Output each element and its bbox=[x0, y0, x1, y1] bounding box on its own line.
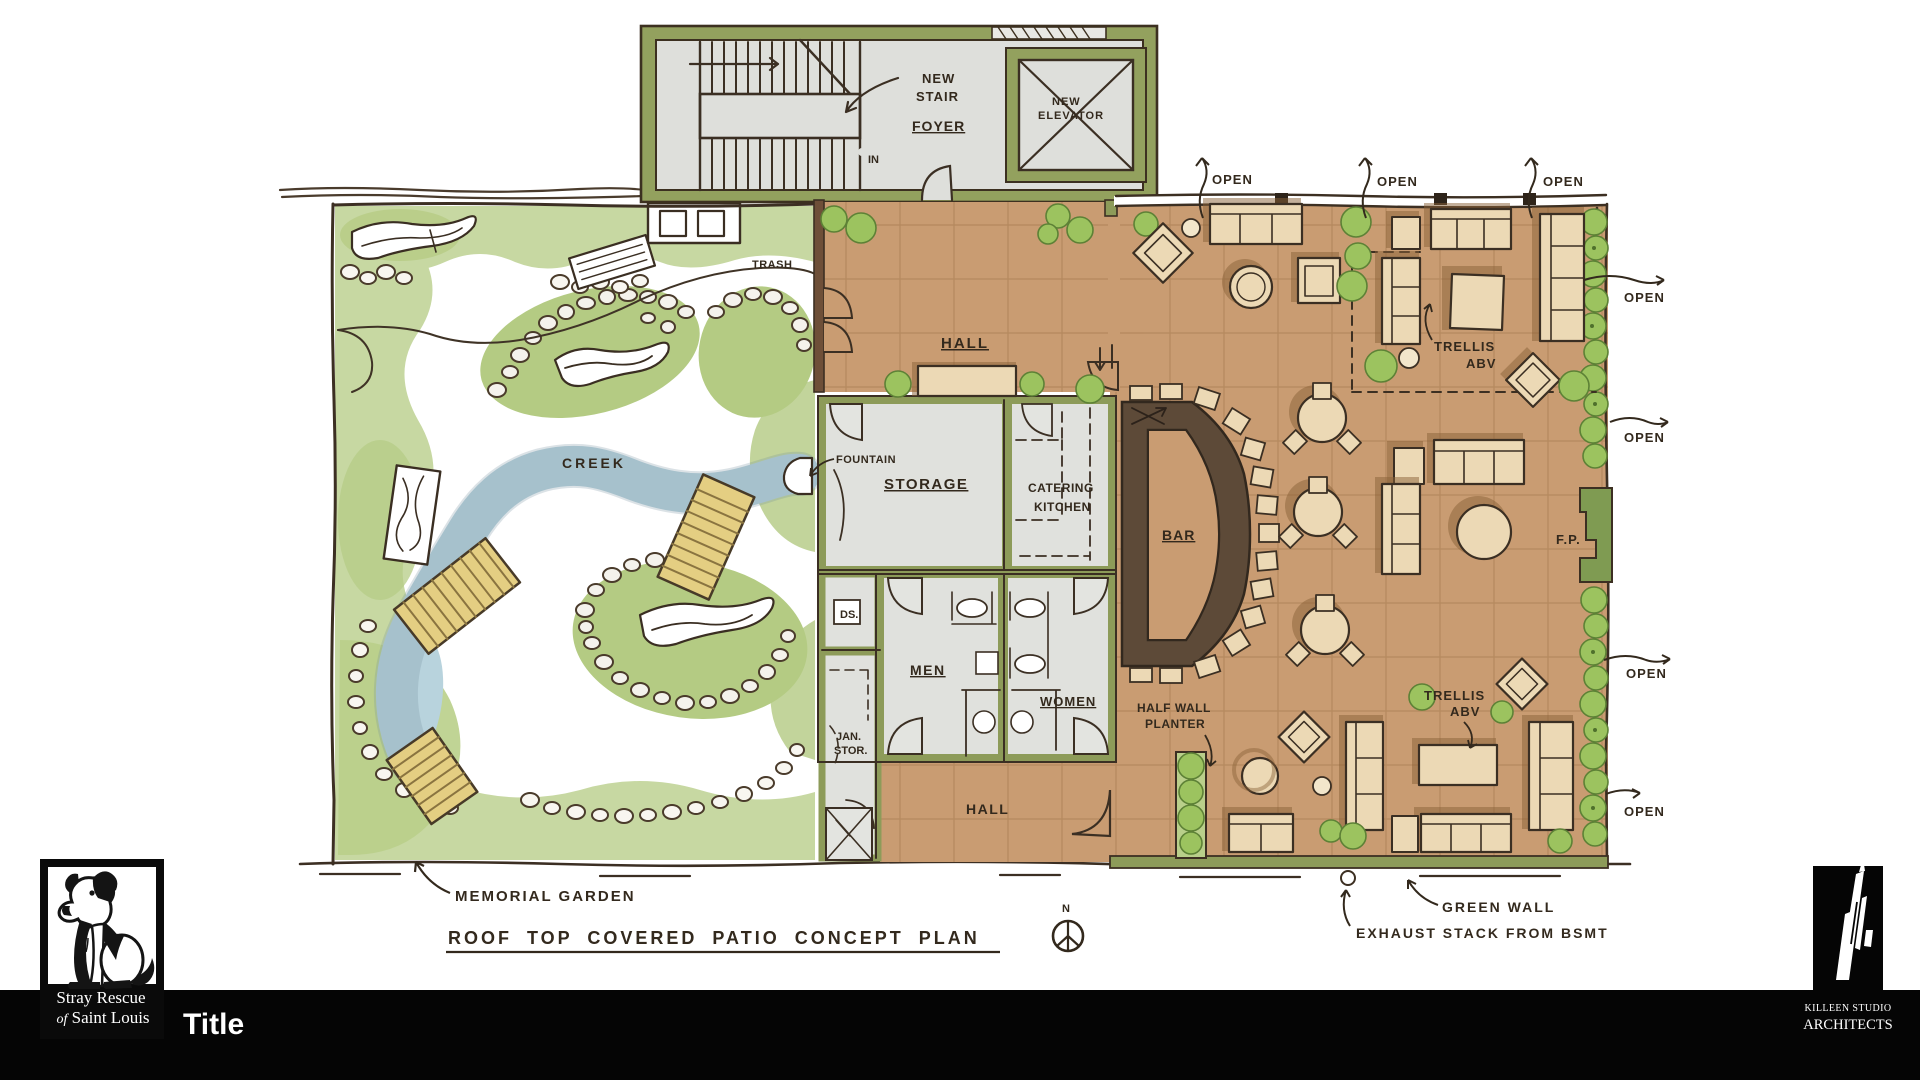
svg-text:FOUNTAIN: FOUNTAIN bbox=[836, 454, 896, 466]
svg-text:of Saint Louis: of Saint Louis bbox=[56, 1008, 149, 1027]
svg-text:EXHAUST STACK FROM BSMT: EXHAUST STACK FROM BSMT bbox=[1356, 925, 1609, 941]
svg-text:OPEN: OPEN bbox=[1212, 172, 1253, 187]
svg-text:CREEK: CREEK bbox=[562, 455, 626, 471]
svg-text:OPEN: OPEN bbox=[1377, 174, 1418, 189]
svg-text:OPEN: OPEN bbox=[1624, 430, 1665, 445]
svg-text:KITCHEN: KITCHEN bbox=[1034, 500, 1091, 514]
svg-text:JAN.: JAN. bbox=[836, 731, 861, 743]
svg-text:ABV: ABV bbox=[1466, 356, 1496, 371]
svg-text:FOYER: FOYER bbox=[912, 118, 965, 134]
svg-text:NEW: NEW bbox=[1052, 96, 1081, 108]
svg-text:MEMORIAL GARDEN: MEMORIAL GARDEN bbox=[455, 888, 636, 905]
svg-text:HALL: HALL bbox=[941, 335, 989, 352]
svg-text:HALL: HALL bbox=[966, 801, 1009, 817]
svg-text:STORAGE: STORAGE bbox=[884, 476, 968, 493]
svg-text:OPEN: OPEN bbox=[1624, 290, 1665, 305]
svg-text:GREEN WALL: GREEN WALL bbox=[1442, 899, 1555, 915]
svg-text:KILLEEN STUDIO: KILLEEN STUDIO bbox=[1805, 1003, 1892, 1014]
svg-text:OPEN: OPEN bbox=[1626, 666, 1667, 681]
svg-text:ARCHITECTS: ARCHITECTS bbox=[1803, 1017, 1892, 1033]
svg-text:NEW: NEW bbox=[922, 71, 955, 86]
svg-text:WOMEN: WOMEN bbox=[1040, 694, 1096, 709]
svg-text:HALF WALL: HALF WALL bbox=[1137, 701, 1211, 715]
svg-text:PLANTER: PLANTER bbox=[1145, 717, 1205, 731]
svg-text:Title: Title bbox=[183, 1008, 244, 1041]
svg-text:CATERING: CATERING bbox=[1028, 481, 1094, 495]
svg-text:DS.: DS. bbox=[840, 609, 858, 621]
svg-text:OPEN: OPEN bbox=[1543, 174, 1584, 189]
svg-text:ROOF TOP COVERED PATIO CONCEPT: ROOF TOP COVERED PATIO CONCEPT PLAN bbox=[448, 928, 980, 948]
svg-text:IN: IN bbox=[868, 154, 879, 166]
svg-text:TRELLIS: TRELLIS bbox=[1434, 339, 1495, 354]
svg-text:ELEVATOR: ELEVATOR bbox=[1038, 110, 1104, 122]
svg-text:ABV: ABV bbox=[1450, 704, 1480, 719]
svg-text:BAR: BAR bbox=[1162, 527, 1195, 543]
svg-text:OPEN: OPEN bbox=[1624, 804, 1665, 819]
svg-text:F.P.: F.P. bbox=[1556, 532, 1581, 547]
svg-text:TRASH: TRASH bbox=[752, 259, 792, 271]
svg-text:TRELLIS: TRELLIS bbox=[1424, 688, 1485, 703]
svg-text:Stray Rescue: Stray Rescue bbox=[56, 988, 145, 1007]
svg-text:MEN: MEN bbox=[910, 662, 946, 678]
svg-text:N: N bbox=[1062, 903, 1070, 915]
svg-text:STAIR: STAIR bbox=[916, 89, 959, 104]
svg-text:STOR.: STOR. bbox=[834, 745, 867, 757]
